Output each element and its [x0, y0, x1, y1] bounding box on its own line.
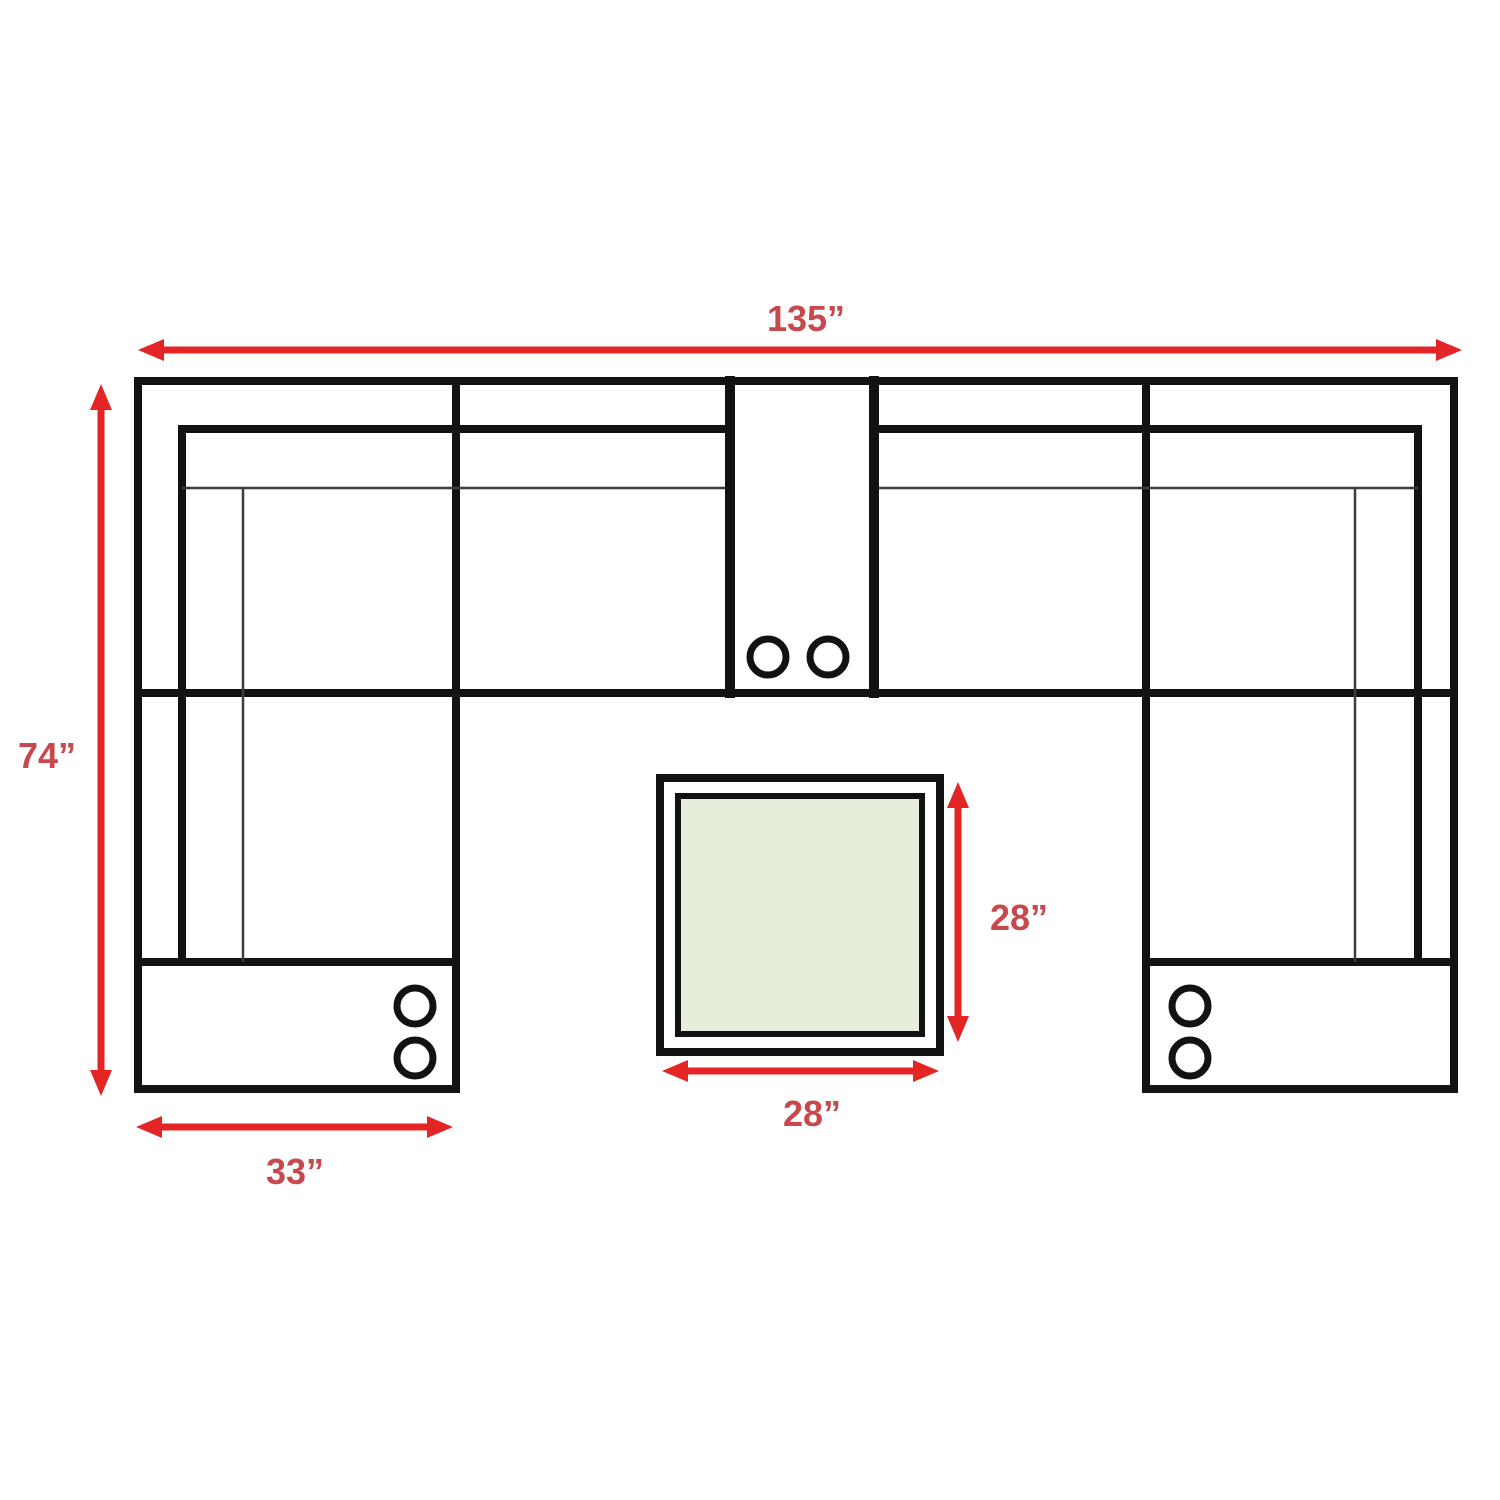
arrowhead-down-icon: [90, 1070, 112, 1096]
ottoman: [660, 778, 940, 1052]
arrowhead-right-icon: [1436, 339, 1462, 361]
ottoman-width-label: 28”: [783, 1093, 841, 1134]
cup-holder-icon: [1172, 988, 1208, 1024]
chaise-width-dimension: 33”: [136, 1116, 453, 1192]
cup-holder-icon: [810, 639, 846, 675]
cup-holder-icon: [750, 639, 786, 675]
arrowhead-up-icon: [90, 384, 112, 410]
center-console: [730, 381, 874, 693]
ottoman-depth-dimension: 28”: [947, 782, 1048, 1042]
left-chaise: [397, 988, 433, 1076]
arrowhead-right-icon: [427, 1116, 453, 1138]
overall-depth-label: 74”: [18, 735, 76, 776]
chaise-width-label: 33”: [266, 1151, 324, 1192]
arrowhead-right-icon: [913, 1060, 939, 1082]
overall-depth-dimension: 74”: [18, 384, 112, 1096]
ottoman-width-dimension: 28”: [662, 1060, 939, 1134]
sectional-dimension-diagram: 135” 74” 33” 28” 28”: [0, 0, 1500, 1500]
arrowhead-down-icon: [947, 1016, 969, 1042]
ottoman-top-surface: [678, 796, 922, 1034]
arrowhead-left-icon: [136, 1116, 162, 1138]
arrowhead-up-icon: [947, 782, 969, 808]
right-chaise: [1172, 988, 1208, 1076]
cup-holder-icon: [1172, 1040, 1208, 1076]
cup-holder-icon: [397, 988, 433, 1024]
overall-width-dimension: 135”: [138, 298, 1462, 361]
ottoman-depth-label: 28”: [990, 897, 1048, 938]
cup-holder-icon: [397, 1040, 433, 1076]
arrowhead-left-icon: [662, 1060, 688, 1082]
overall-width-label: 135”: [767, 298, 845, 339]
arrowhead-left-icon: [138, 339, 164, 361]
sectional-dimension-diagram-page: 135” 74” 33” 28” 28”: [0, 0, 1500, 1500]
